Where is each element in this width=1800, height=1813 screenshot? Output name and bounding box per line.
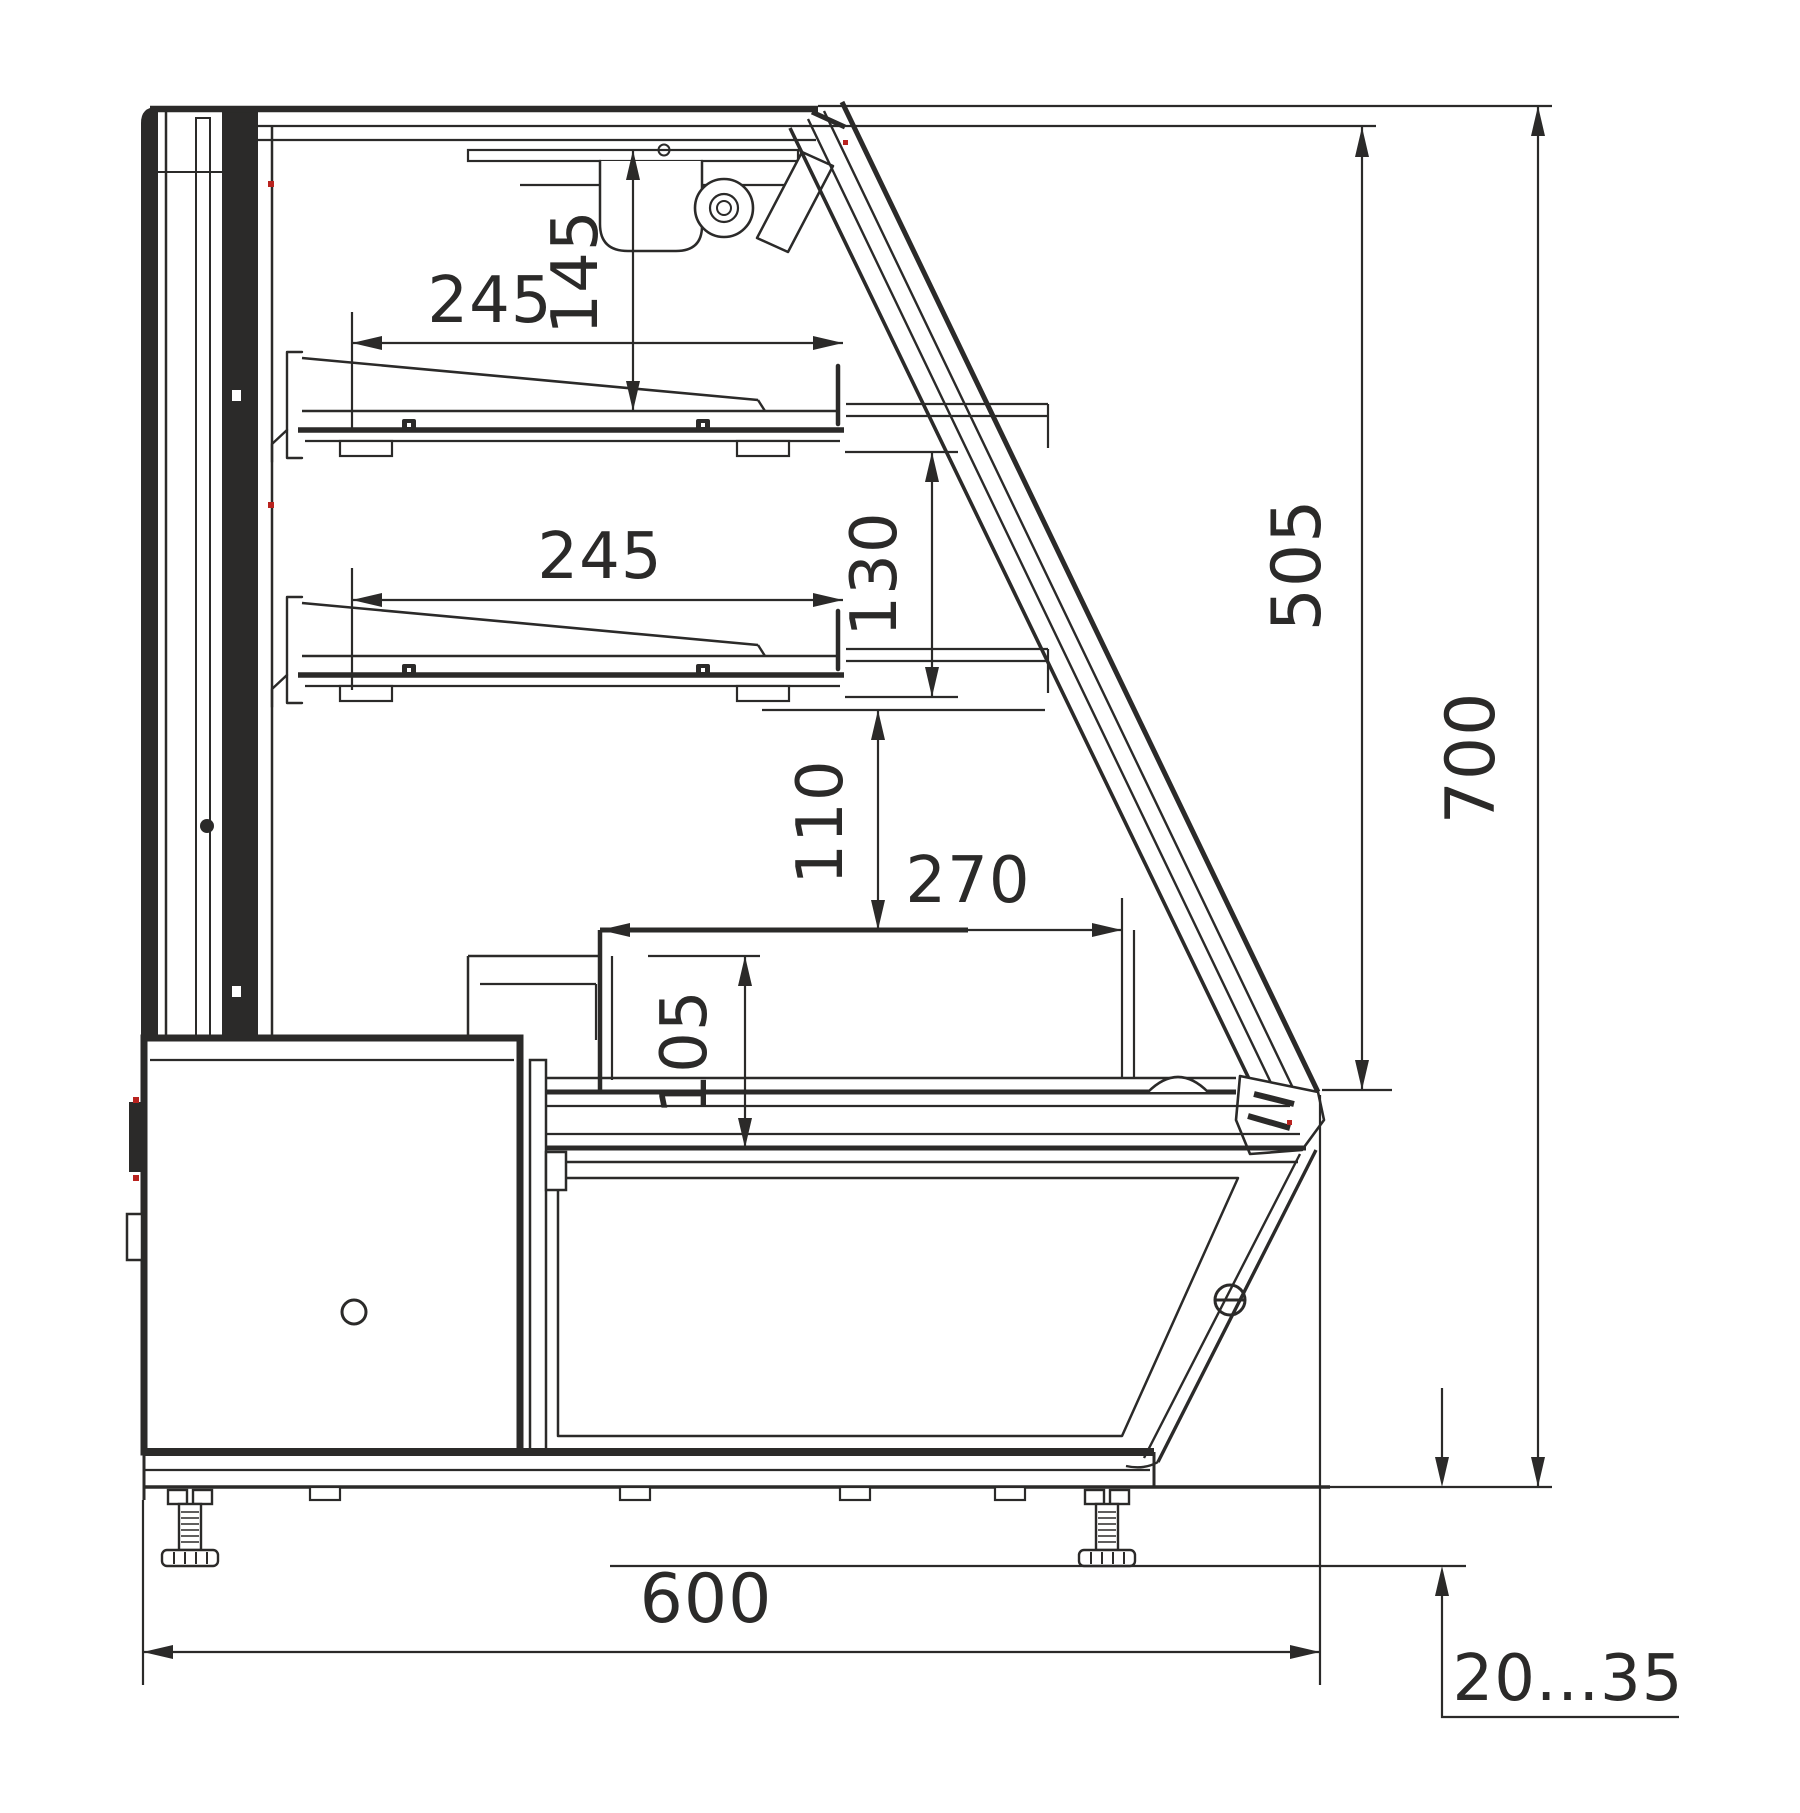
dim-foot-adjust-range: 20...35 bbox=[610, 1388, 1683, 1717]
canopy bbox=[150, 106, 1552, 252]
technical-drawing-canvas: 245 145 245 130 505 700 bbox=[0, 0, 1800, 1813]
dim-deck-depth: 270 bbox=[600, 844, 1122, 937]
machine-compartment bbox=[127, 1038, 520, 1452]
dim-shelf-lower-depth: 245 bbox=[352, 520, 843, 690]
dim-label-270: 270 bbox=[905, 844, 1030, 918]
dim-well-depth-height: 105 bbox=[648, 956, 760, 1148]
dim-label-105: 105 bbox=[648, 989, 722, 1114]
dim-label-600: 600 bbox=[640, 1560, 773, 1639]
dim-glass-opening-height: 505 bbox=[1258, 127, 1392, 1090]
dim-overall-height: 700 bbox=[1432, 106, 1545, 1487]
door-latch bbox=[127, 1214, 142, 1260]
back-panel-bolt bbox=[200, 819, 214, 833]
shelf-1 bbox=[272, 352, 1048, 462]
dim-shelf-2-to-deck: 110 bbox=[784, 710, 885, 930]
dim-label-700: 700 bbox=[1432, 692, 1511, 825]
dim-label-505: 505 bbox=[1258, 499, 1337, 632]
dim-label-130: 130 bbox=[838, 511, 912, 636]
glass-stop-profile bbox=[757, 152, 833, 252]
well-deck bbox=[468, 898, 1306, 1436]
base-plinth bbox=[144, 1452, 1552, 1500]
foot-right bbox=[1079, 1490, 1135, 1566]
back-panel bbox=[141, 107, 274, 1040]
dim-label-245-upper: 245 bbox=[427, 264, 552, 338]
roller-pulley bbox=[695, 179, 753, 237]
roller-bracket bbox=[600, 161, 702, 251]
dim-label-245-lower: 245 bbox=[537, 520, 662, 594]
door-hinge bbox=[129, 1102, 142, 1172]
sill-gasket-bump bbox=[1148, 1077, 1208, 1092]
dim-label-110: 110 bbox=[784, 759, 858, 884]
foot-left bbox=[162, 1490, 218, 1566]
well-inner-panel bbox=[558, 1178, 1238, 1436]
dim-label-145: 145 bbox=[539, 209, 613, 334]
dim-label-20-35: 20...35 bbox=[1453, 1642, 1684, 1716]
